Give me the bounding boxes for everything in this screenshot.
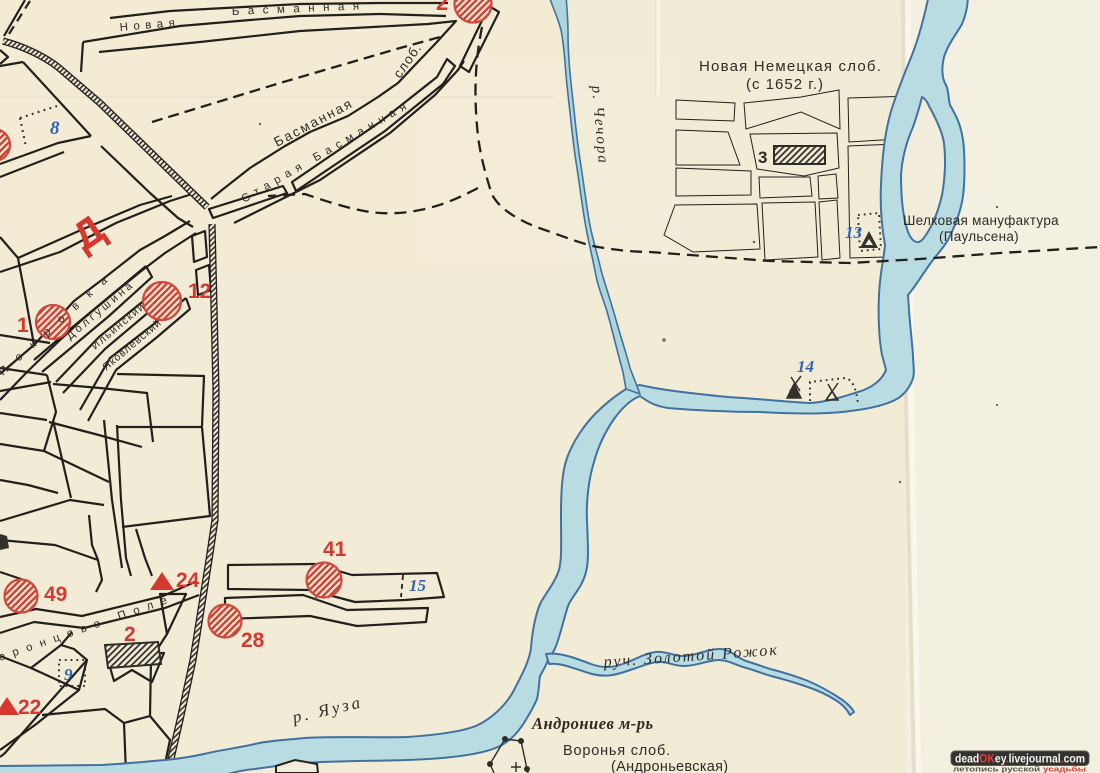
svg-text:41: 41: [323, 538, 347, 561]
svg-text:3: 3: [758, 148, 767, 167]
svg-text:2: 2: [436, 0, 448, 15]
svg-text:22: 22: [18, 696, 41, 719]
svg-text:deadOKey.livejournal.com: deadOKey.livejournal.com: [955, 752, 1085, 766]
svg-text:Воронья слоб.: Воронья слоб.: [563, 743, 671, 759]
svg-text:49: 49: [44, 583, 67, 606]
svg-text:(Паульсена): (Паульсена): [939, 229, 1019, 244]
svg-text:9: 9: [64, 665, 73, 684]
svg-text:2: 2: [124, 623, 136, 646]
svg-text:28: 28: [241, 629, 265, 652]
svg-text:Новая Немецкая слоб.: Новая Немецкая слоб.: [699, 58, 882, 75]
svg-text:летопись русской усадьбы: летопись русской усадьбы: [953, 766, 1086, 773]
svg-text:14: 14: [797, 357, 814, 376]
svg-text:(с 1652 г.): (с 1652 г.): [746, 76, 824, 93]
svg-text:1: 1: [17, 314, 29, 337]
svg-text:24: 24: [176, 569, 200, 592]
svg-text:8: 8: [50, 118, 60, 139]
svg-text:12: 12: [188, 280, 211, 303]
svg-text:13: 13: [845, 223, 863, 242]
svg-text:Шелковая мануфактура: Шелковая мануфактура: [903, 213, 1059, 228]
svg-text:(Андроньевская): (Андроньевская): [611, 759, 728, 773]
svg-text:15: 15: [409, 576, 427, 595]
svg-text:Андрониев м-рь: Андрониев м-рь: [531, 714, 654, 733]
